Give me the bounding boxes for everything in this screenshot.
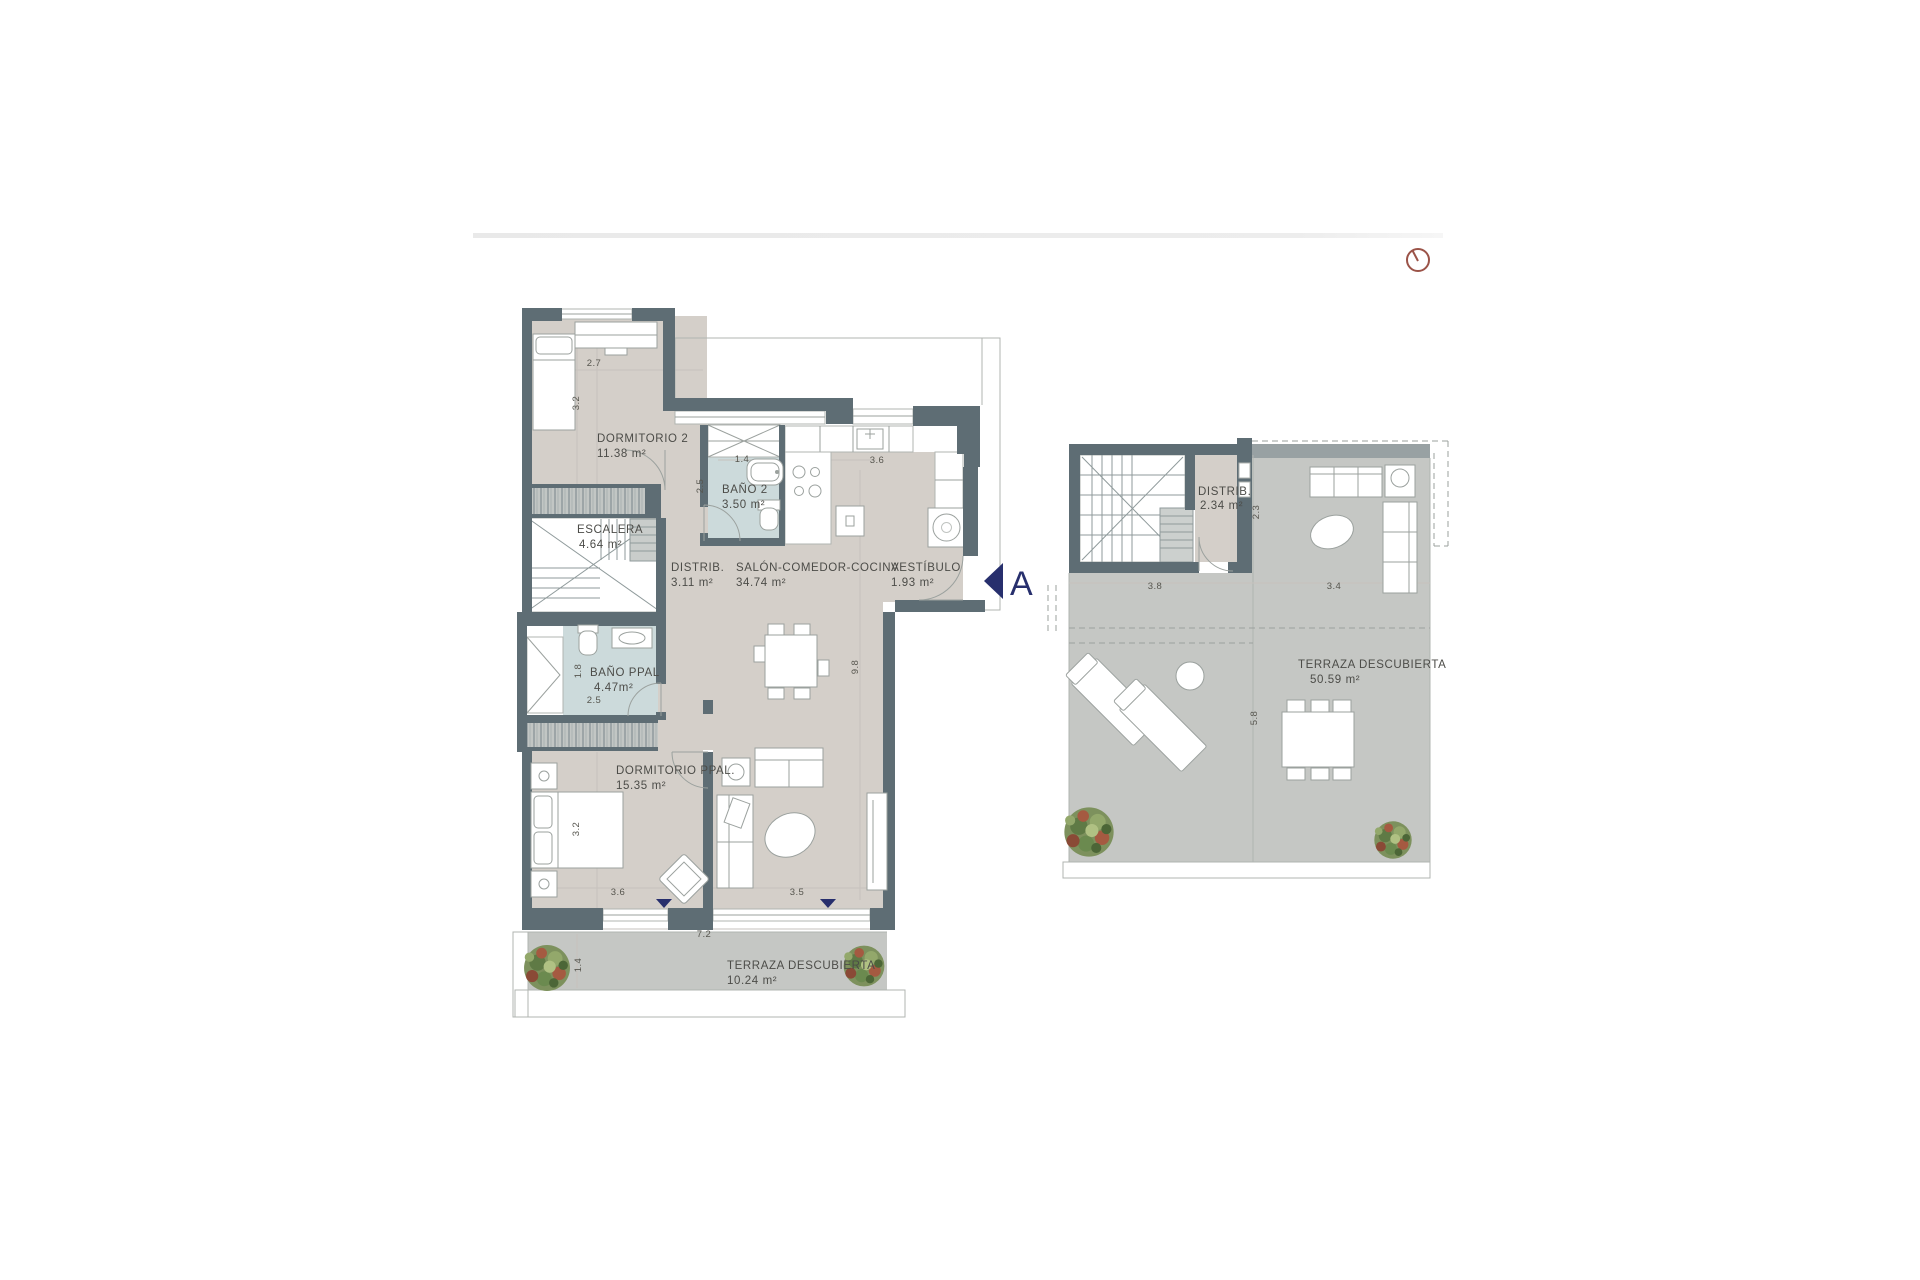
section-arrow-icon	[984, 563, 1003, 599]
roof-terrace-plan: DISTRIB. 2.34 m² TERRAZA DESCUBIERTA 50.…	[1063, 438, 1448, 878]
room-area: 3.50 m²	[722, 499, 765, 511]
room-area: 34.74 m²	[736, 577, 786, 589]
bano2-closet	[708, 425, 780, 457]
dim-label: 9.8	[850, 660, 861, 674]
plant-icon	[1374, 821, 1411, 858]
dim-label: 5.8	[1249, 711, 1260, 725]
room-label: TERRAZA DESCUBIERTA	[1298, 659, 1446, 671]
plant-icon	[524, 945, 570, 991]
kitchen-unit	[836, 506, 864, 536]
room-area: 3.11 m²	[671, 577, 713, 589]
room-area: 4.47m²	[594, 682, 633, 694]
dim-label: 2.5	[587, 695, 601, 706]
dim-label: 3.5	[790, 887, 804, 898]
room-area: 1.93 m²	[891, 577, 934, 589]
dim-label: 2.7	[587, 358, 601, 369]
room-area: 2.34 m²	[1200, 500, 1243, 512]
room-label: SALÓN-COMEDOR-COCINA	[736, 561, 899, 574]
wardrobe-strip-bottom	[527, 719, 658, 751]
dim-label: 3.4	[1327, 581, 1341, 592]
room-label: DISTRIB.	[1198, 486, 1251, 498]
floor-plan-canvas: DORMITORIO 2 11.38 m² BAÑO 2 3.50 m² ESC…	[0, 0, 1920, 1280]
dim-label: 1.4	[735, 454, 749, 465]
room-area: 10.24 m²	[727, 975, 777, 987]
roof-parapet	[1252, 444, 1430, 458]
dim-label: 2.3	[1251, 505, 1262, 519]
bed-single	[533, 334, 575, 430]
outdoor-dining-table	[1282, 700, 1354, 780]
plant-icon	[1064, 807, 1113, 856]
wardrobe-strip-top	[532, 484, 661, 518]
room-label: DISTRIB.	[671, 562, 724, 574]
sink-ppal-icon	[612, 628, 652, 648]
dim-label: 3.6	[870, 455, 884, 466]
room-label: DORMITORIO PPAL.	[616, 765, 735, 777]
room-area: 15.35 m²	[616, 780, 666, 792]
dim-label: 3.2	[571, 822, 582, 836]
section-marker-label: A	[1010, 565, 1033, 603]
dim-label: 3.8	[1148, 581, 1162, 592]
side-table-icon	[1176, 662, 1204, 690]
terrace-edge	[515, 990, 905, 1017]
washing-machine-icon	[928, 508, 965, 547]
toilet-ppal-icon	[578, 625, 598, 655]
clock-icon	[1407, 249, 1429, 271]
room-label: TERRAZA DESCUBIERTA	[727, 960, 875, 972]
dim-label: 7.2	[697, 929, 711, 940]
dim-label: 3.2	[571, 396, 582, 410]
room-label: VESTÍBULO	[891, 561, 961, 574]
header-divider	[473, 233, 1443, 238]
tv-unit	[867, 793, 887, 890]
dim-label: 1.8	[573, 664, 584, 678]
bathtub-icon	[747, 459, 783, 485]
room-area: 4.64 m²	[579, 539, 622, 551]
room-label: BAÑO 2	[722, 483, 768, 496]
room-label: ESCALERA	[577, 524, 643, 536]
main-floor-plan: DORMITORIO 2 11.38 m² BAÑO 2 3.50 m² ESC…	[513, 308, 1056, 1017]
room-area: 50.59 m²	[1310, 674, 1360, 686]
dim-label: 3.6	[611, 887, 625, 898]
roof-terrace-edge	[1063, 862, 1430, 878]
section-marker-a: A	[984, 563, 1033, 603]
closet-left	[527, 637, 563, 713]
dim-label: 2.5	[695, 479, 706, 493]
room-area: 11.38 m²	[597, 448, 646, 460]
room-label: BAÑO PPAL	[590, 666, 660, 679]
dim-label: 1.4	[573, 958, 584, 972]
room-label: DORMITORIO 2	[597, 433, 688, 445]
